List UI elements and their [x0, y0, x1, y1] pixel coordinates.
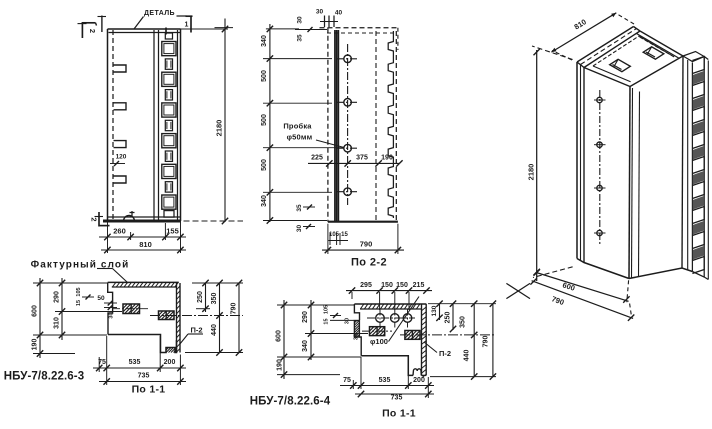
svg-text:735: 735 — [391, 395, 403, 402]
svg-text:200: 200 — [413, 377, 425, 384]
svg-text:1: 1 — [185, 22, 189, 29]
svg-text:735: 735 — [138, 373, 150, 380]
svg-text:30: 30 — [297, 16, 304, 24]
svg-text:По 1-1: По 1-1 — [132, 384, 166, 396]
svg-text:155: 155 — [166, 227, 179, 236]
svg-text:НБУ-7/8.22.6-3: НБУ-7/8.22.6-3 — [4, 371, 84, 383]
svg-text:250: 250 — [445, 312, 452, 324]
svg-text:500: 500 — [261, 159, 268, 171]
svg-text:790: 790 — [483, 336, 490, 348]
svg-text:130: 130 — [431, 305, 438, 316]
svg-text:350: 350 — [211, 293, 218, 305]
svg-text:790: 790 — [360, 240, 373, 249]
svg-text:40: 40 — [335, 10, 343, 17]
svg-text:30: 30 — [296, 225, 303, 233]
svg-text:105: 105 — [329, 232, 340, 238]
svg-text:350: 350 — [460, 316, 467, 328]
svg-text:190: 190 — [277, 359, 284, 371]
svg-text:190: 190 — [32, 339, 39, 351]
svg-text:290: 290 — [302, 311, 309, 323]
svg-text:440: 440 — [211, 324, 218, 336]
svg-text:30: 30 — [345, 318, 351, 324]
svg-text:500: 500 — [261, 70, 268, 82]
svg-text:120: 120 — [116, 154, 127, 161]
svg-text:15: 15 — [341, 232, 348, 238]
svg-text:375: 375 — [356, 155, 368, 162]
svg-text:По 1-1: По 1-1 — [382, 408, 416, 420]
svg-text:810: 810 — [139, 240, 152, 249]
svg-text:340: 340 — [302, 340, 309, 352]
svg-text:35: 35 — [297, 34, 304, 42]
svg-text:П-2: П-2 — [190, 326, 202, 335]
svg-text:790: 790 — [231, 303, 238, 315]
svg-text:340: 340 — [261, 35, 268, 47]
svg-text:φ50мм: φ50мм — [287, 133, 313, 142]
svg-text:250: 250 — [197, 291, 204, 303]
svg-text:15: 15 — [76, 300, 82, 306]
svg-text:15: 15 — [324, 318, 330, 324]
svg-text:215: 215 — [413, 282, 425, 289]
svg-text:35: 35 — [354, 334, 360, 340]
svg-text:2: 2 — [90, 217, 99, 221]
svg-text:50: 50 — [97, 295, 105, 302]
svg-text:200: 200 — [164, 359, 176, 366]
svg-text:600: 600 — [32, 305, 39, 317]
svg-text:φ100: φ100 — [370, 337, 388, 346]
svg-text:295: 295 — [360, 282, 372, 289]
svg-text:75: 75 — [343, 377, 351, 384]
svg-text:ДЕТАЛЬ: ДЕТАЛЬ — [144, 10, 175, 17]
svg-text:П-2: П-2 — [439, 349, 451, 358]
svg-text:105: 105 — [76, 287, 82, 296]
svg-text:По 2-2: По 2-2 — [351, 257, 387, 269]
svg-text:500: 500 — [261, 114, 268, 126]
svg-text:600: 600 — [276, 330, 283, 342]
svg-text:Фактурный слой: Фактурный слой — [31, 260, 130, 271]
svg-text:150: 150 — [396, 282, 408, 289]
svg-text:2: 2 — [88, 29, 97, 33]
svg-text:НБУ-7/8.22.6-4: НБУ-7/8.22.6-4 — [250, 396, 331, 408]
svg-text:310: 310 — [54, 317, 61, 329]
svg-text:190: 190 — [381, 155, 393, 162]
svg-text:35: 35 — [296, 204, 303, 212]
svg-text:440: 440 — [464, 350, 471, 362]
svg-text:150: 150 — [381, 282, 393, 289]
svg-text:340: 340 — [261, 195, 268, 207]
svg-text:225: 225 — [311, 155, 323, 162]
svg-text:290: 290 — [54, 291, 61, 303]
svg-text:2180: 2180 — [527, 164, 536, 181]
svg-text:Пробка: Пробка — [283, 122, 312, 131]
svg-text:535: 535 — [379, 377, 391, 384]
svg-text:2180: 2180 — [215, 120, 224, 137]
svg-text:30: 30 — [316, 9, 324, 16]
svg-text:260: 260 — [113, 227, 126, 236]
svg-text:105: 105 — [324, 305, 330, 314]
svg-text:30: 30 — [109, 312, 115, 318]
svg-text:535: 535 — [129, 359, 141, 366]
